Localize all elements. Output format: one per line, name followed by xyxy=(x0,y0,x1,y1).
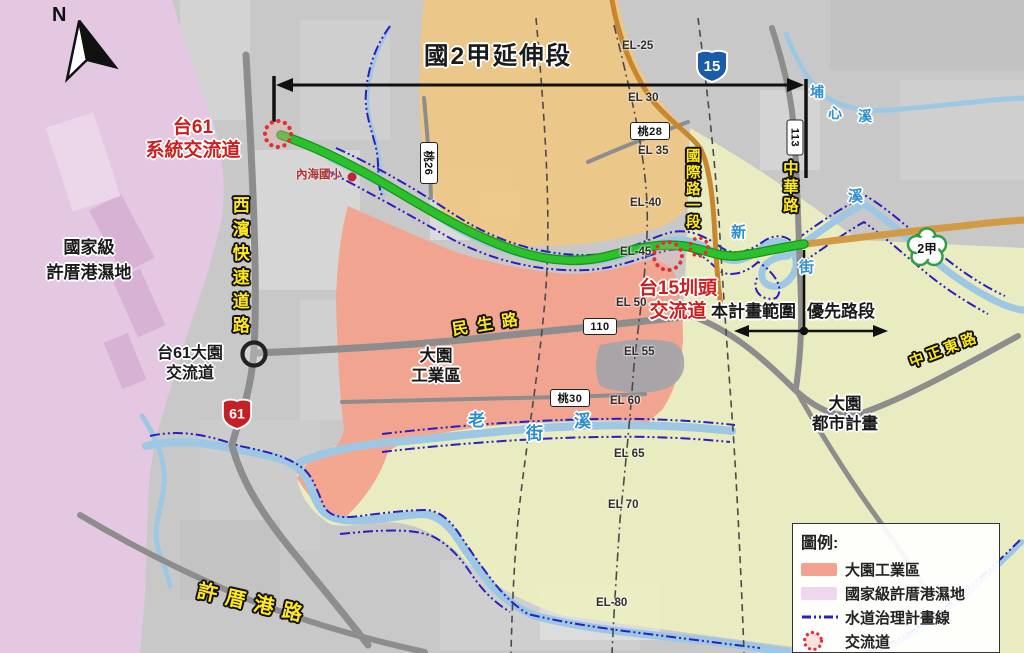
urban-plan-label: 大園 都市計畫 xyxy=(800,394,890,434)
project-range-label: 本計畫範圍 xyxy=(711,302,796,323)
xibin-road-label: 西濱快速道路 xyxy=(228,196,249,340)
extension-title: 國2甲延伸段 xyxy=(424,42,572,72)
legend-item-waterline: 水道治理計畫線 xyxy=(801,605,991,629)
laojie-river-char: 溪 xyxy=(574,412,591,433)
zhonghua-road-label: 中華路 xyxy=(779,160,798,216)
elevation-label: EL 50 xyxy=(616,297,646,309)
svg-text:2甲: 2甲 xyxy=(917,242,936,256)
neihai-school-label: 內海國小 xyxy=(296,168,342,182)
route-marker-tao28: 桃28 xyxy=(630,122,670,140)
laojie-river-char: 街 xyxy=(526,424,543,445)
guoji-road-label: 國際路一段 xyxy=(682,148,700,231)
elevation-label: EL 30 xyxy=(628,92,658,104)
school-dot xyxy=(348,173,357,182)
legend-item-industrial: 大園工業區 xyxy=(801,557,991,581)
puxin-river-char: 溪 xyxy=(858,108,872,125)
elevation-label: EL 35 xyxy=(638,145,668,157)
elevation-label: EL 65 xyxy=(614,448,644,460)
elevation-label: EL 60 xyxy=(610,395,640,407)
route-shield-15: 15 xyxy=(695,48,729,84)
tai61-dayuan-ic-label: 台61大園 交流道 xyxy=(144,344,236,383)
route-marker-tao30: 桃30 xyxy=(550,389,590,407)
elevation-label: EL 70 xyxy=(608,499,638,511)
route-marker-113: 113 xyxy=(787,120,804,156)
elevation-label: EL-80 xyxy=(596,597,627,609)
legend-title: 圖例: xyxy=(801,529,991,553)
route-marker-110: 110 xyxy=(583,318,617,335)
elevation-label: EL-40 xyxy=(630,197,661,209)
elevation-label: EL-45 xyxy=(620,246,651,258)
legend-item-interchange: 交流道 xyxy=(801,629,991,653)
legend-box: 圖例: 大園工業區 國家級許厝港濕地 水道治理計畫線 交流道 xyxy=(792,523,1000,653)
legend-item-wetland: 國家級許厝港濕地 xyxy=(801,581,991,605)
map-canvas: N 國2甲延伸段 台61 系統交流道 內海國小 國家級 許厝港濕地 西濱快速道路… xyxy=(0,0,1024,653)
priority-section-label: 優先路段 xyxy=(807,302,875,323)
svg-text:61: 61 xyxy=(229,406,245,422)
north-label: N xyxy=(52,4,66,27)
xinjie-river-char: 新 xyxy=(731,224,746,242)
interchange-swatch-icon xyxy=(801,629,825,653)
puxin-river-char: 埔 xyxy=(810,84,824,101)
xinjie-river-char: 街 xyxy=(799,259,814,277)
route-shield-61: 61 xyxy=(221,397,253,431)
route-marker-tao26: 桃26 xyxy=(420,142,438,184)
tai61-dayuan-ring xyxy=(243,343,266,366)
laojie-river-char: 老 xyxy=(468,411,485,432)
tai61-system-interchange-circle xyxy=(265,121,291,147)
elevation-label: EL-25 xyxy=(622,40,653,52)
puxin-river-char: 心 xyxy=(828,105,842,122)
xinjie-river-char: 溪 xyxy=(848,188,863,206)
elevation-label: EL 55 xyxy=(624,346,654,358)
tai61-system-ic-label: 台61 系統交流道 xyxy=(136,116,250,162)
waterline-swatch-icon xyxy=(801,613,841,621)
wetland-swatch xyxy=(801,587,837,600)
route-shield-2a-flower: 2甲 xyxy=(906,227,948,267)
industrial-area-label: 大園 工業區 xyxy=(404,346,468,386)
svg-text:15: 15 xyxy=(704,58,721,75)
industrial-swatch xyxy=(801,563,837,576)
wetland-name-label: 國家級 許厝港濕地 xyxy=(28,236,150,285)
